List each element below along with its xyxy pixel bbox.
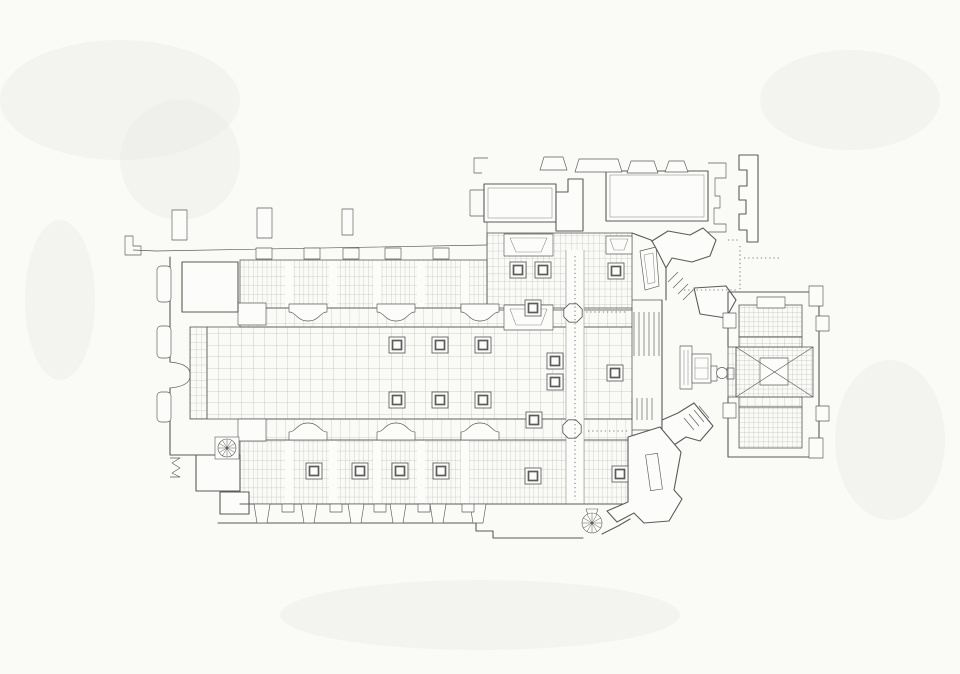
pier-base — [432, 337, 448, 353]
chapel-east-window — [816, 406, 829, 421]
chapel-band — [739, 337, 802, 347]
gravestone — [257, 208, 272, 238]
pier-base — [525, 300, 541, 316]
south-wall-window — [374, 504, 386, 512]
north-wall-window — [433, 248, 449, 259]
pier-base — [510, 262, 526, 278]
pier-base — [475, 392, 491, 408]
smudge — [25, 220, 95, 380]
pier-base — [547, 374, 563, 390]
pier-base — [608, 263, 624, 279]
pier-base — [392, 463, 408, 479]
south-wall-window — [282, 504, 294, 512]
crossing-pier — [564, 304, 582, 322]
crossing-passage-floor — [566, 250, 584, 504]
west-buttress — [157, 266, 171, 302]
vestry-buttress — [575, 159, 622, 172]
east-annex-pier — [739, 155, 758, 242]
vestry-west — [484, 184, 556, 222]
tomb-recess — [606, 236, 632, 254]
crossing-passage — [566, 250, 584, 504]
vestry-east — [606, 171, 708, 221]
chapel-north-recess — [757, 297, 785, 308]
aisle-bay-strip — [417, 441, 425, 503]
smudge — [835, 360, 945, 520]
tomb-recess — [504, 234, 553, 256]
aisle-bay-strip — [329, 441, 337, 503]
south-wall-window — [330, 504, 342, 512]
aisle-bay-strip — [285, 261, 293, 307]
pier-base — [389, 392, 405, 408]
floors — [190, 233, 632, 504]
south-buttress — [254, 504, 270, 523]
north-aisle-floor — [240, 260, 487, 308]
smudge — [760, 50, 940, 150]
aisle-bay-strip — [373, 261, 381, 307]
spiral-stair-newel — [226, 447, 229, 450]
aisle-bay-strip — [329, 261, 337, 307]
floor-plan-page — [0, 0, 960, 674]
south-wall-window — [462, 504, 474, 512]
pier-base — [525, 468, 541, 484]
south-buttress — [430, 504, 446, 523]
smudge — [280, 580, 680, 650]
pier-base — [432, 392, 448, 408]
respond-end-block — [238, 303, 266, 325]
vestry-buttress — [540, 157, 567, 170]
gravestone — [172, 210, 187, 240]
pier-base — [535, 262, 551, 278]
west-buttress — [157, 326, 171, 358]
font-neck — [711, 366, 717, 381]
aisle-bay-strip — [373, 441, 381, 503]
floor-plan-drawing — [0, 0, 960, 674]
chapel-east-window — [816, 316, 829, 331]
pier-base — [389, 337, 405, 353]
pier-base — [526, 412, 542, 428]
aisle-bay-strip — [417, 261, 425, 307]
font-bowl — [717, 368, 728, 379]
vestry-buttress — [627, 161, 658, 173]
chapel-corner-buttress — [809, 438, 823, 458]
south-buttress — [390, 504, 406, 523]
south-buttress — [348, 504, 364, 523]
southwest-annex — [220, 492, 249, 514]
chapel-south-floor — [739, 407, 802, 448]
font-back-plate — [680, 346, 692, 389]
south-wall-window — [418, 504, 430, 512]
smudge — [120, 100, 240, 220]
south-buttress — [301, 504, 317, 523]
pier-base — [475, 337, 491, 353]
pier-base — [607, 365, 623, 381]
aisle-bay-strip — [285, 441, 293, 503]
northwest-room — [182, 262, 238, 312]
respond-end-block — [238, 419, 266, 441]
pier-base — [612, 466, 628, 482]
chapel-band — [739, 397, 802, 407]
chapel-west-doorway — [723, 403, 736, 418]
crossing-pier — [563, 420, 581, 438]
chapel-north-floor — [739, 305, 802, 337]
chapel-corner-buttress — [809, 286, 823, 306]
chapel-west-doorway — [723, 313, 736, 328]
chapel-west-band — [728, 347, 736, 397]
vestry-buttress — [665, 161, 688, 172]
west-buttress — [157, 392, 171, 422]
southwest-room — [196, 455, 240, 491]
aisle-bay-strip — [461, 441, 469, 503]
spiral-stair-newel — [591, 522, 594, 525]
pier-base — [306, 463, 322, 479]
north-wall-window — [256, 248, 272, 259]
pier-base — [547, 353, 563, 369]
aisle-bay-strip — [461, 261, 469, 307]
pier-base — [352, 463, 368, 479]
north-wall-window — [385, 248, 401, 259]
north-wall-window — [304, 248, 320, 259]
north-wall-window — [343, 248, 359, 259]
pier-base — [433, 463, 449, 479]
gravestone — [342, 209, 353, 235]
west-bay-floor — [190, 327, 207, 419]
